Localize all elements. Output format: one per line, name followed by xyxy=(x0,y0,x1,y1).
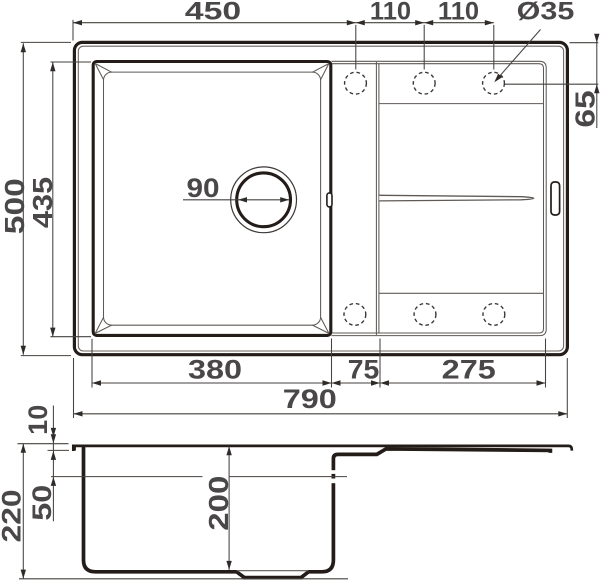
svg-text:220: 220 xyxy=(0,489,27,542)
svg-text:200: 200 xyxy=(204,476,234,531)
svg-text:50: 50 xyxy=(28,485,58,521)
svg-text:450: 450 xyxy=(185,0,241,25)
svg-text:75: 75 xyxy=(348,354,380,384)
svg-text:90: 90 xyxy=(186,173,219,203)
svg-text:275: 275 xyxy=(442,355,496,385)
svg-text:10: 10 xyxy=(23,405,53,435)
svg-text:380: 380 xyxy=(188,355,242,385)
svg-text:435: 435 xyxy=(27,177,58,228)
svg-text:110: 110 xyxy=(370,0,411,25)
svg-text:110: 110 xyxy=(438,0,479,25)
svg-text:500: 500 xyxy=(0,178,30,234)
svg-text:65: 65 xyxy=(569,90,600,127)
svg-text:790: 790 xyxy=(283,384,337,414)
svg-text:Ø35: Ø35 xyxy=(517,0,575,25)
